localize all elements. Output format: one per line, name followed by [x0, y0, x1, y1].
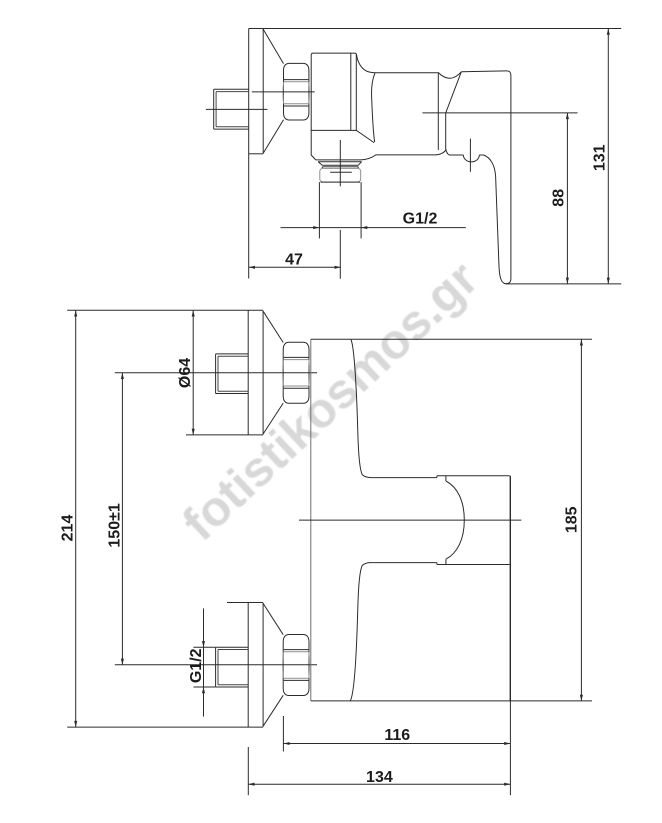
svg-text:88: 88 — [550, 189, 567, 207]
svg-text:185: 185 — [563, 506, 580, 533]
svg-text:47: 47 — [285, 252, 303, 269]
svg-text:Ø64: Ø64 — [177, 358, 194, 388]
svg-text:214: 214 — [59, 515, 76, 542]
svg-text:fotistikosmos.gr: fotistikosmos.gr — [173, 252, 489, 551]
svg-text:116: 116 — [384, 727, 410, 744]
svg-text:134: 134 — [366, 769, 393, 786]
svg-text:150±1: 150±1 — [106, 503, 123, 547]
svg-text:G1/2: G1/2 — [403, 211, 438, 228]
svg-text:G1/2: G1/2 — [188, 648, 205, 683]
svg-text:131: 131 — [591, 144, 608, 171]
